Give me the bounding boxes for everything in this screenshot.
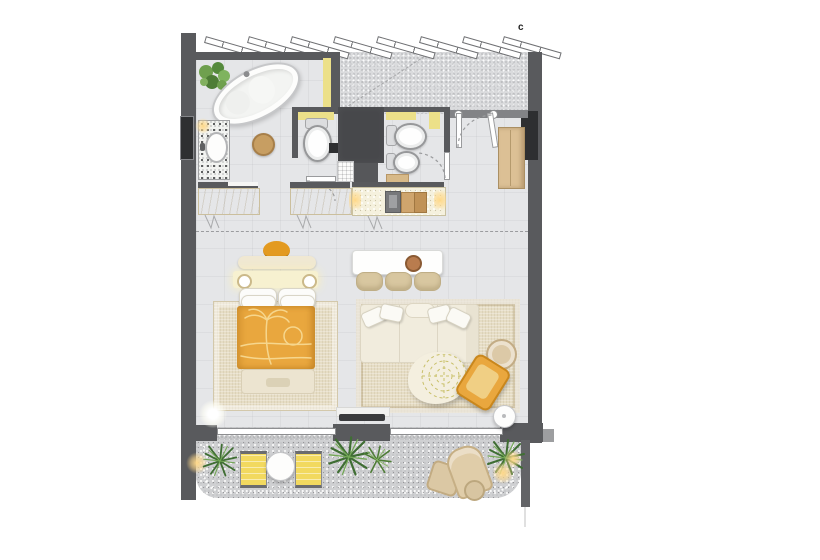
service-core-sub — [352, 163, 378, 183]
vanity-faucet — [200, 143, 205, 151]
tiled-niche — [337, 161, 354, 182]
cabinet-split-line — [510, 130, 511, 186]
kitchen-light-glow — [434, 186, 446, 214]
balcony-chair — [295, 451, 322, 488]
top-wall — [194, 52, 340, 60]
bed-foot-bench — [241, 369, 315, 394]
sketch-marks — [366, 215, 386, 231]
bean-bag-pouf — [408, 352, 467, 404]
bar-stool — [414, 272, 441, 291]
bedside-lamp — [302, 274, 317, 289]
bar-stool — [385, 272, 412, 291]
balcony-light-glow — [504, 450, 522, 468]
kitchen-sink — [385, 191, 401, 213]
wc2-yellow-wall-h — [386, 112, 416, 120]
sliding-door-right — [390, 428, 503, 435]
bedside-lamp — [237, 274, 252, 289]
palm-plant — [200, 441, 240, 481]
tv-screen — [339, 414, 385, 421]
party-wall-shadow — [524, 507, 526, 527]
balcony-table — [266, 452, 295, 481]
wc1-left-wall — [292, 112, 298, 158]
wood-stool — [252, 133, 275, 156]
ceiling-light — [199, 400, 227, 428]
bath-room-right-wall — [331, 52, 340, 114]
wardrobe — [198, 182, 258, 213]
headboard — [233, 271, 318, 288]
entry-door-swing — [457, 114, 495, 150]
wardrobe-shelf-line — [228, 182, 258, 186]
balcony-side-table — [464, 480, 485, 501]
vanity-light-glow — [195, 118, 211, 134]
wc1-toilet — [303, 125, 332, 162]
sketch-marks — [295, 214, 315, 230]
left-wall-niche — [181, 117, 193, 159]
duvet-palm-art — [237, 306, 315, 369]
ceiling-break-line — [196, 231, 528, 232]
bed-pillows — [239, 288, 314, 307]
palm-plant — [360, 443, 394, 477]
cutting-board — [401, 192, 415, 213]
top-terrace-zone — [340, 52, 528, 114]
service-core — [338, 107, 384, 163]
small-side-table — [493, 405, 516, 428]
bar-bowl — [405, 255, 422, 272]
wc2-toilet — [394, 123, 427, 150]
sliding-door-left — [217, 428, 336, 435]
wc1-paper-holder — [329, 143, 338, 153]
sketch-marks — [203, 214, 223, 230]
headboard-shelf — [238, 256, 316, 269]
entry-wardrobe-cabinet — [498, 127, 525, 189]
bar-stool — [356, 272, 383, 291]
wardrobe — [290, 182, 350, 213]
bath-yellow-wall-strip — [323, 58, 331, 112]
bed-duvet — [237, 306, 315, 369]
wc2-yellow-wall-v — [429, 112, 440, 129]
party-wall-wing — [543, 429, 554, 442]
wc2-door-swing — [416, 152, 446, 180]
floor-plan-image: c — [0, 0, 820, 560]
plan-corner-mark: c — [518, 22, 524, 33]
kitchen-counter — [352, 187, 446, 216]
balcony-chair — [240, 451, 267, 488]
cutting-board — [414, 192, 427, 213]
vanity-sink — [205, 132, 228, 163]
